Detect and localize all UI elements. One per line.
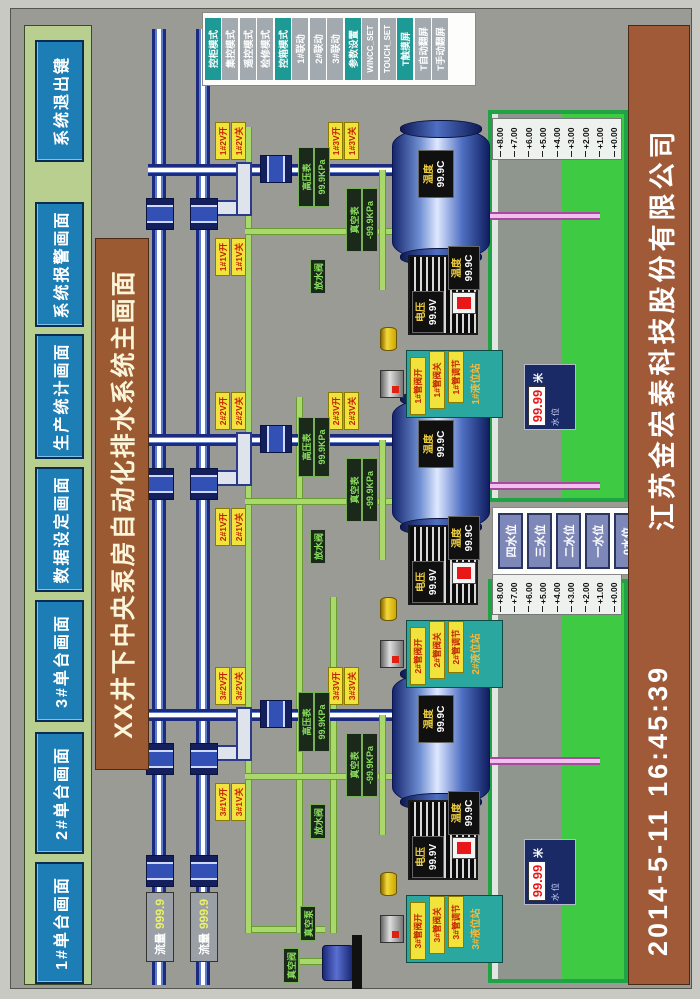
mode-button-panel: 控柜模式集控模式遥控模式检修模式控箱模式1#联动2#联动3#联动参数设置WINC…	[202, 12, 476, 86]
vacuum-gauge-label: 真空表	[346, 733, 362, 797]
mode-button[interactable]: T触摸屏	[397, 18, 413, 80]
motor-status-lamp	[452, 837, 476, 859]
scale-tick: +0.00	[609, 121, 619, 157]
branch-valve-icon[interactable]	[146, 743, 174, 775]
pump-group-1: 1#1V开 1#1V关 1#2V开 1#2V关 1#3V开 1#3V关 高压表 …	[140, 76, 610, 420]
valve-close-button[interactable]: 1#3V关	[344, 122, 359, 160]
motor-temp-readout: 温度99.9C	[448, 516, 480, 560]
pipe-elbow	[236, 707, 252, 761]
branch-valve-icon[interactable]	[260, 425, 292, 453]
branch-valve-icon[interactable]	[190, 468, 218, 500]
valve-open-close-pair: 1#2V开 1#2V关	[215, 122, 246, 160]
mode-button[interactable]: 2#联动	[310, 18, 326, 80]
pressure-gauge-value: 99.9KPa	[314, 417, 330, 477]
vacuum-stub-line	[379, 440, 386, 560]
mode-button[interactable]: 集控模式	[222, 18, 238, 80]
pressure-gauge-label: 高压表	[298, 147, 314, 207]
valve-station-button[interactable]: 1#管调节	[448, 351, 464, 403]
level-probe-icon	[380, 597, 397, 621]
level-probe-icon	[380, 872, 397, 896]
pressure-gauge-label: 高压表	[298, 417, 314, 477]
mode-button[interactable]: 遥控模式	[240, 18, 256, 80]
motor-temp-readout: 温度99.9C	[448, 791, 480, 835]
mode-button[interactable]: 3#联动	[327, 18, 343, 80]
scale-tick: +0.00	[609, 576, 619, 612]
nav-button[interactable]: 系统报警画面	[35, 202, 84, 327]
valve-station-button[interactable]: 2#管调节	[448, 621, 464, 673]
mode-button[interactable]: 检修模式	[257, 18, 273, 80]
pump-temp-readout: 温度99.9C	[418, 420, 454, 468]
tick-mark	[614, 606, 615, 612]
top-navigation-bar: 1#单台画面2#单台画面3#单台画面数据设定画面生产统计画面系统报警画面系统退出…	[24, 25, 92, 985]
mode-button[interactable]: T自动翻屏	[415, 18, 431, 80]
branch-valve-icon[interactable]	[190, 198, 218, 230]
pump-barrel-cap	[400, 120, 482, 138]
valve-open-close-pair: 3#1V开 3#1V关	[215, 783, 246, 821]
valve-station-button[interactable]: 3#管调节	[448, 896, 464, 948]
pipe-elbow	[236, 162, 252, 216]
valve-open-button[interactable]: 3#1V开	[215, 783, 230, 821]
vacuum-pump-line	[300, 958, 324, 965]
tick-mark	[614, 151, 615, 157]
valve-station-button[interactable]: 2#管阀开	[410, 627, 426, 685]
suction-pipe	[484, 212, 600, 220]
valve-station-title: 3#液位站	[467, 896, 482, 962]
datetime-text: 2014-5-11 16:45:39	[643, 665, 674, 956]
drain-valve-label: 放水阀	[310, 804, 326, 839]
mode-button[interactable]: 1#联动	[292, 18, 308, 80]
motor-temp-readout: 温度99.9C	[448, 246, 480, 290]
valve-open-button[interactable]: 1#2V开	[215, 122, 230, 160]
valve-close-button[interactable]: 1#1V关	[231, 238, 246, 276]
motor-voltage-readout: 电压99.9V	[412, 561, 444, 603]
valve-station-button[interactable]: 3#管阀开	[410, 902, 426, 960]
company-name: 江苏金宏泰科技股份有限公司	[641, 114, 680, 544]
nav-button[interactable]: 2#单台画面	[35, 732, 84, 854]
vacuum-gauge-label: 真空表	[346, 188, 362, 252]
valve-station-button[interactable]: 1#管阀关	[429, 351, 445, 409]
valve-open-close-pair: 1#3V开 1#3V关	[328, 122, 359, 160]
vacuum-gauge-value: -99.9KPa	[362, 458, 378, 522]
valve-actuator-icon	[380, 640, 404, 668]
mode-button[interactable]: T手动翻屏	[432, 18, 448, 80]
valve-station-box: 1#管阀开 1#管阀关 1#管调节 1#液位站	[406, 350, 503, 418]
hmi-screen: 流量 999.9 流量 999.9 +8.00+7.00+6.00+5.00+4…	[0, 0, 700, 999]
vacuum-pump-base	[352, 935, 362, 989]
nav-button[interactable]: 数据设定画面	[35, 467, 84, 592]
mode-button[interactable]: 控箱模式	[275, 18, 291, 80]
level-probe-icon	[380, 327, 397, 351]
drain-valve-label: 放水阀	[310, 259, 326, 294]
mode-button[interactable]: WINCC_SET	[362, 18, 378, 80]
valve-open-button[interactable]: 1#1V开	[215, 238, 230, 276]
mode-button[interactable]: 控柜模式	[205, 18, 221, 80]
pressure-gauge-label: 高压表	[298, 692, 314, 752]
vacuum-stub-line	[379, 715, 386, 835]
valve-station-box: 3#管阀开 3#管阀关 3#管调节 3#液位站	[406, 895, 503, 963]
valve-open-button[interactable]: 2#1V开	[215, 508, 230, 546]
nav-button[interactable]: 生产统计画面	[35, 334, 84, 459]
valve-station-title: 2#液位站	[467, 621, 482, 687]
branch-valve-icon[interactable]	[260, 155, 292, 183]
valve-open-button[interactable]: 1#3V开	[328, 122, 343, 160]
vacuum-gauge-value: -99.9KPa	[362, 188, 378, 252]
vacuum-pump-icon[interactable]	[322, 945, 354, 981]
mode-button[interactable]: 参数设置	[345, 18, 361, 80]
rotated-photo-viewport: 流量 999.9 流量 999.9 +8.00+7.00+6.00+5.00+4…	[0, 0, 700, 999]
mode-button[interactable]: TOUCH_SET	[380, 18, 396, 80]
valve-open-close-pair: 2#1V开 2#1V关	[215, 508, 246, 546]
suction-pipe	[484, 757, 600, 765]
branch-valve-icon[interactable]	[146, 468, 174, 500]
motor-voltage-readout: 电压99.9V	[412, 836, 444, 878]
valve-actuator-icon	[380, 370, 404, 398]
valve-station-button[interactable]: 2#管阀关	[429, 621, 445, 679]
nav-button[interactable]: 1#单台画面	[35, 862, 84, 984]
branch-valve-icon[interactable]	[190, 743, 218, 775]
valve-close-button[interactable]: 1#2V关	[231, 122, 246, 160]
page-title: XX井下中央泵房自动化排水系统主画面	[95, 238, 149, 770]
pipe-elbow	[236, 432, 252, 486]
valve-station-title: 1#液位站	[467, 351, 482, 417]
vacuum-valve-label: 真空阀	[283, 948, 299, 983]
suction-pipe	[484, 482, 600, 490]
footer-bar: 2014-5-11 16:45:39 江苏金宏泰科技股份有限公司	[628, 25, 690, 985]
valve-station-box: 2#管阀开 2#管阀关 2#管调节 2#液位站	[406, 620, 503, 688]
vacuum-gauge-label: 真空表	[346, 458, 362, 522]
vacuum-gauge-value: -99.9KPa	[362, 733, 378, 797]
drain-valve-label: 放水阀	[310, 529, 326, 564]
valve-open-close-pair: 1#1V开 1#1V关	[215, 238, 246, 276]
motor-status-lamp	[452, 292, 476, 314]
branch-valve-icon[interactable]	[260, 700, 292, 728]
motor-status-lamp	[452, 562, 476, 584]
vacuum-pump-label: 真空泵	[300, 906, 316, 941]
vacuum-stub-line	[379, 170, 386, 290]
branch-valve-icon[interactable]	[146, 198, 174, 230]
valve-station-button[interactable]: 1#管阀开	[410, 357, 426, 415]
valve-actuator-icon	[380, 915, 404, 943]
nav-button[interactable]: 3#单台画面	[35, 600, 84, 722]
valve-station-button[interactable]: 3#管阀关	[429, 896, 445, 954]
pump-temp-readout: 温度99.9C	[418, 695, 454, 743]
nav-button[interactable]: 系统退出键	[35, 40, 84, 162]
valve-close-button[interactable]: 2#1V关	[231, 508, 246, 546]
pressure-gauge-value: 99.9KPa	[314, 692, 330, 752]
valve-close-button[interactable]: 3#1V关	[231, 783, 246, 821]
pump-temp-readout: 温度99.9C	[418, 150, 454, 198]
motor-voltage-readout: 电压99.9V	[412, 291, 444, 333]
pressure-gauge-value: 99.9KPa	[314, 147, 330, 207]
